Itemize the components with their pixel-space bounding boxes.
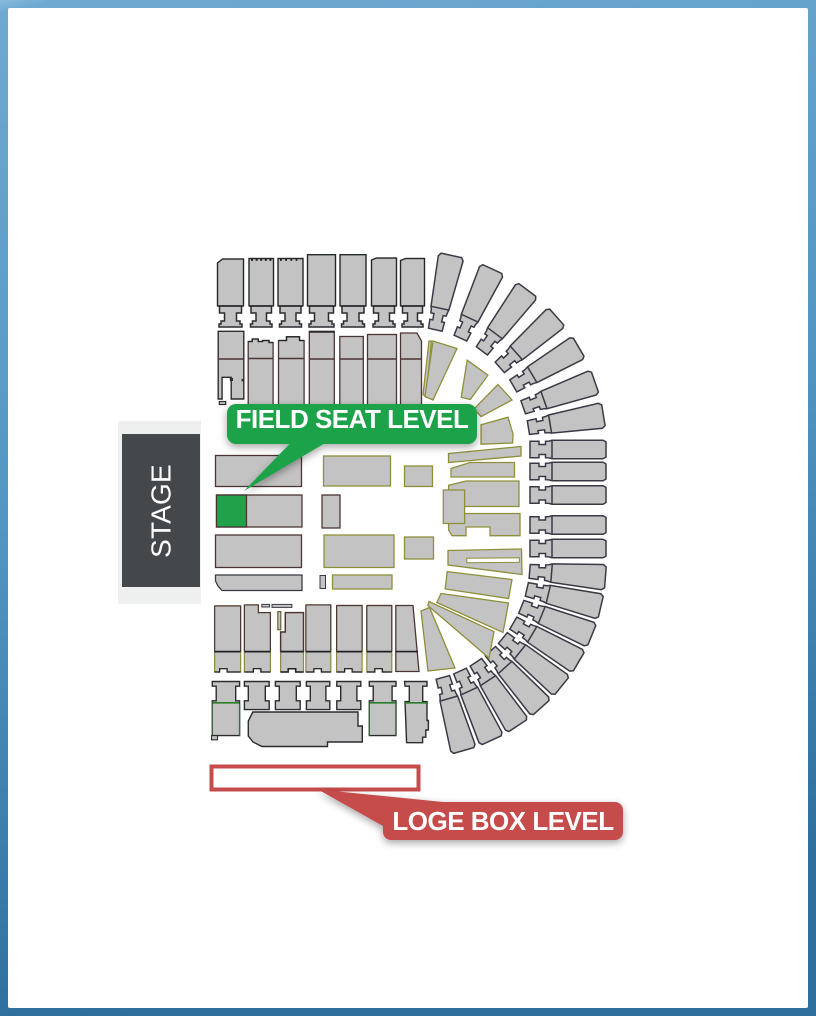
svg-text:STAGE: STAGE	[146, 464, 177, 558]
svg-text:FIELD SEAT LEVEL: FIELD SEAT LEVEL	[236, 404, 469, 434]
svg-text:LOGE BOX LEVEL: LOGE BOX LEVEL	[392, 806, 614, 836]
